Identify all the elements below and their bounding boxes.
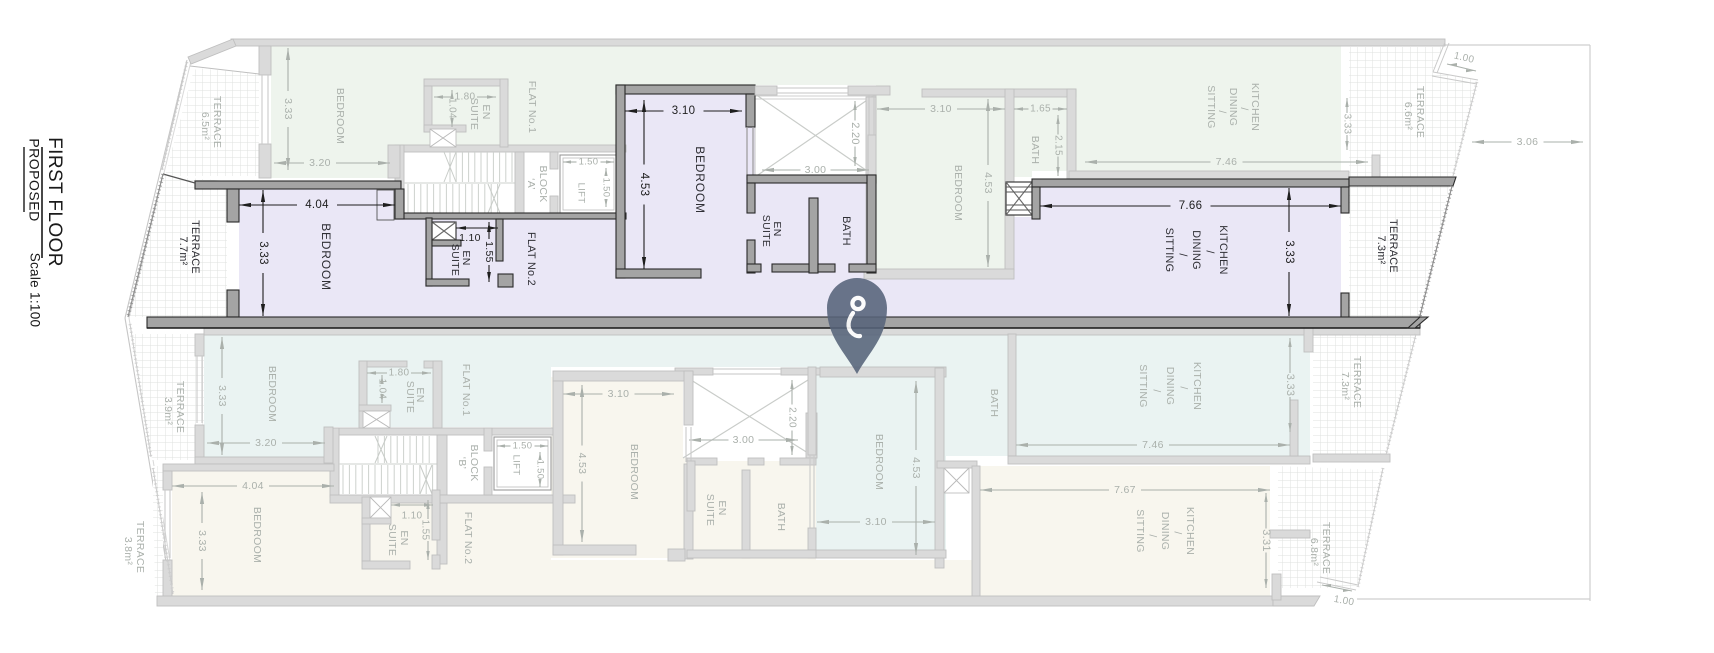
svg-text:7.66: 7.66 — [1179, 200, 1203, 212]
svg-text:‘A’: ‘A’ — [525, 178, 537, 190]
svg-text:3.10: 3.10 — [608, 388, 630, 400]
svg-text:6.5m²: 6.5m² — [199, 112, 211, 141]
svg-text:1.04: 1.04 — [446, 98, 457, 119]
svg-text:1.50: 1.50 — [513, 441, 533, 452]
svg-text:4.04: 4.04 — [242, 480, 264, 492]
svg-text:3.33: 3.33 — [1341, 114, 1352, 135]
svg-text:1.50: 1.50 — [534, 460, 545, 480]
svg-text:/: / — [1147, 534, 1159, 537]
svg-text:FLAT No.1: FLAT No.1 — [460, 364, 472, 417]
svg-text:6.6m²: 6.6m² — [1402, 102, 1414, 131]
svg-text:FLAT No.2: FLAT No.2 — [462, 512, 474, 565]
svg-text:3.10: 3.10 — [672, 105, 696, 117]
svg-text:3.10: 3.10 — [930, 103, 952, 115]
svg-text:BEDROOM: BEDROOM — [873, 434, 885, 490]
svg-text:EN: EN — [480, 104, 492, 119]
svg-text:2.15: 2.15 — [1052, 135, 1063, 156]
svg-text:/: / — [1204, 250, 1216, 253]
svg-text:TERRACE: TERRACE — [1351, 356, 1363, 408]
svg-text:4.53: 4.53 — [576, 453, 588, 475]
svg-text:7.46: 7.46 — [1216, 156, 1238, 168]
svg-text:BEDROOM: BEDROOM — [693, 146, 707, 214]
svg-text:3.33: 3.33 — [257, 241, 269, 265]
svg-text:2.20: 2.20 — [849, 122, 861, 145]
svg-text:3.20: 3.20 — [255, 437, 277, 449]
svg-text:SITTING: SITTING — [1134, 509, 1146, 553]
svg-text:3.06: 3.06 — [1517, 136, 1539, 148]
svg-text:LIFT: LIFT — [575, 183, 586, 204]
svg-text:3.10: 3.10 — [865, 516, 887, 528]
svg-text:TERRACE: TERRACE — [1414, 86, 1426, 138]
svg-text:1.55: 1.55 — [419, 520, 430, 541]
svg-text:KITCHEN: KITCHEN — [1184, 507, 1196, 555]
svg-text:6.8m²: 6.8m² — [1308, 538, 1320, 567]
svg-text:/: / — [1216, 110, 1228, 113]
svg-text:3.20: 3.20 — [309, 157, 331, 169]
svg-text:SUITE: SUITE — [468, 98, 480, 130]
svg-text:SUITE: SUITE — [404, 381, 416, 413]
svg-text:4.53: 4.53 — [982, 172, 994, 194]
svg-text:LIFT: LIFT — [510, 455, 521, 476]
svg-text:DINING: DINING — [1159, 512, 1171, 551]
svg-text:DINING: DINING — [1190, 230, 1202, 270]
svg-text:1.50: 1.50 — [600, 178, 611, 198]
svg-text:BEDROOM: BEDROOM — [251, 507, 263, 563]
svg-text:BATH: BATH — [840, 216, 852, 246]
svg-text:BATH: BATH — [988, 389, 1000, 417]
svg-text:2.20: 2.20 — [786, 407, 797, 428]
svg-text:4.04: 4.04 — [305, 199, 329, 211]
svg-text:KITCHEN: KITCHEN — [1217, 225, 1229, 275]
svg-text:1.10: 1.10 — [402, 511, 423, 522]
svg-text:FLAT No.2: FLAT No.2 — [525, 232, 537, 286]
svg-text:1.65: 1.65 — [1030, 104, 1051, 115]
svg-text:BEDROOM: BEDROOM — [334, 88, 346, 144]
svg-text:FIRST FLOOR: FIRST FLOOR — [44, 137, 65, 267]
svg-text:DINING: DINING — [1227, 88, 1239, 127]
svg-text:/: / — [1151, 389, 1163, 392]
svg-text:SUITE: SUITE — [760, 215, 772, 247]
svg-text:EN: EN — [716, 500, 728, 515]
svg-text:/: / — [1178, 386, 1190, 389]
svg-text:3.9m²: 3.9m² — [162, 397, 174, 426]
svg-text:PROPOSED: PROPOSED — [26, 138, 42, 221]
svg-text:3.33: 3.33 — [1284, 374, 1296, 397]
svg-text:3.33: 3.33 — [1283, 240, 1295, 264]
svg-text:BLOCK: BLOCK — [537, 165, 549, 202]
svg-text:1.55: 1.55 — [483, 241, 495, 263]
svg-text:SITTING: SITTING — [1137, 364, 1149, 408]
svg-text:BATH: BATH — [775, 503, 787, 531]
svg-text:3.33: 3.33 — [282, 98, 294, 120]
svg-text:SUITE: SUITE — [449, 244, 461, 276]
svg-text:3.00: 3.00 — [733, 434, 755, 446]
svg-text:1.50: 1.50 — [579, 157, 599, 168]
svg-text:SUITE: SUITE — [704, 494, 716, 526]
svg-text:3.33: 3.33 — [196, 530, 208, 552]
svg-text:TERRACE: TERRACE — [174, 381, 186, 433]
svg-text:7.3m²: 7.3m² — [1375, 235, 1387, 264]
svg-text:4.53: 4.53 — [910, 457, 922, 479]
svg-text:BLOCK: BLOCK — [468, 444, 480, 481]
svg-text:/: / — [1177, 253, 1189, 256]
svg-text:SUITE: SUITE — [386, 524, 398, 556]
svg-text:‘B’: ‘B’ — [456, 457, 468, 470]
svg-text:BEDROOM: BEDROOM — [266, 366, 278, 422]
svg-text:TERRACE: TERRACE — [134, 521, 146, 573]
svg-text:/: / — [1238, 107, 1250, 110]
svg-text:EN: EN — [398, 530, 410, 545]
svg-text:4.53: 4.53 — [638, 173, 650, 197]
svg-text:BEDROOM: BEDROOM — [628, 444, 640, 500]
svg-text:BEDROOM: BEDROOM — [319, 223, 333, 291]
svg-text:SITTING: SITTING — [1205, 85, 1217, 129]
svg-text:FLAT No.1: FLAT No.1 — [526, 81, 538, 134]
svg-text:/: / — [1172, 531, 1184, 534]
svg-text:7.67: 7.67 — [1114, 484, 1136, 496]
svg-text:3.8m²: 3.8m² — [122, 537, 134, 566]
svg-text:BEDROOM: BEDROOM — [952, 165, 964, 221]
svg-text:KITCHEN: KITCHEN — [1191, 362, 1203, 410]
svg-text:BATH: BATH — [1029, 136, 1041, 164]
svg-text:7.7m²: 7.7m² — [177, 236, 189, 265]
svg-text:Scale 1:100: Scale 1:100 — [27, 253, 42, 328]
svg-text:DINING: DINING — [1164, 367, 1176, 406]
svg-text:3.31: 3.31 — [1260, 529, 1272, 552]
svg-text:3.00: 3.00 — [805, 164, 827, 176]
svg-text:1.10: 1.10 — [459, 232, 481, 244]
svg-text:TERRACE: TERRACE — [189, 220, 201, 274]
svg-text:SITTING: SITTING — [1163, 228, 1175, 273]
svg-text:3.33: 3.33 — [216, 385, 228, 407]
svg-text:TERRACE: TERRACE — [211, 96, 223, 148]
svg-text:TERRACE: TERRACE — [1320, 522, 1332, 574]
svg-text:7.46: 7.46 — [1142, 439, 1164, 451]
svg-text:1.04: 1.04 — [376, 379, 387, 400]
svg-text:7.3m²: 7.3m² — [1339, 372, 1351, 401]
svg-text:TERRACE: TERRACE — [1387, 219, 1399, 273]
svg-text:1.80: 1.80 — [389, 368, 410, 379]
